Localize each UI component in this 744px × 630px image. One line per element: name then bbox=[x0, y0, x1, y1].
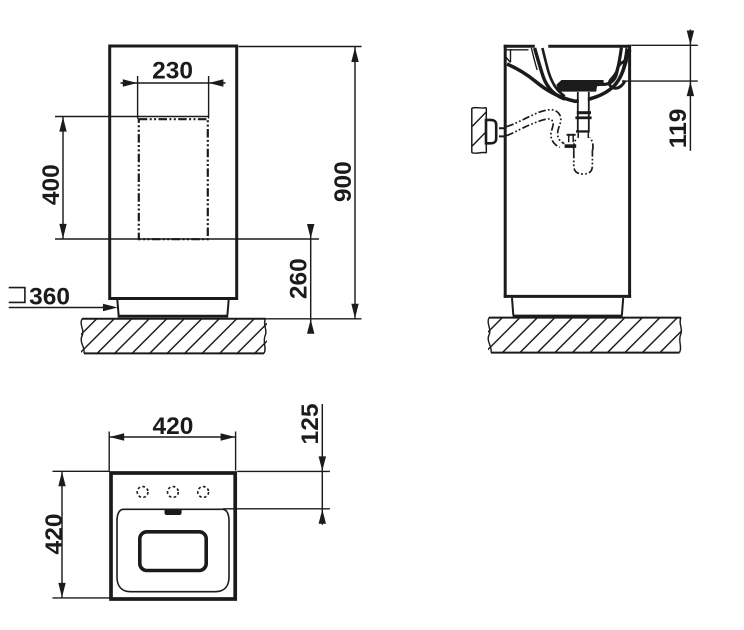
svg-text:900: 900 bbox=[330, 161, 357, 202]
svg-text:230: 230 bbox=[152, 58, 193, 85]
svg-text:360: 360 bbox=[29, 283, 70, 310]
svg-text:119: 119 bbox=[665, 109, 692, 149]
svg-text:400: 400 bbox=[38, 164, 65, 205]
svg-text:125: 125 bbox=[297, 404, 324, 445]
svg-text:260: 260 bbox=[286, 258, 313, 299]
svg-text:420: 420 bbox=[152, 413, 193, 440]
svg-text:420: 420 bbox=[41, 514, 68, 555]
